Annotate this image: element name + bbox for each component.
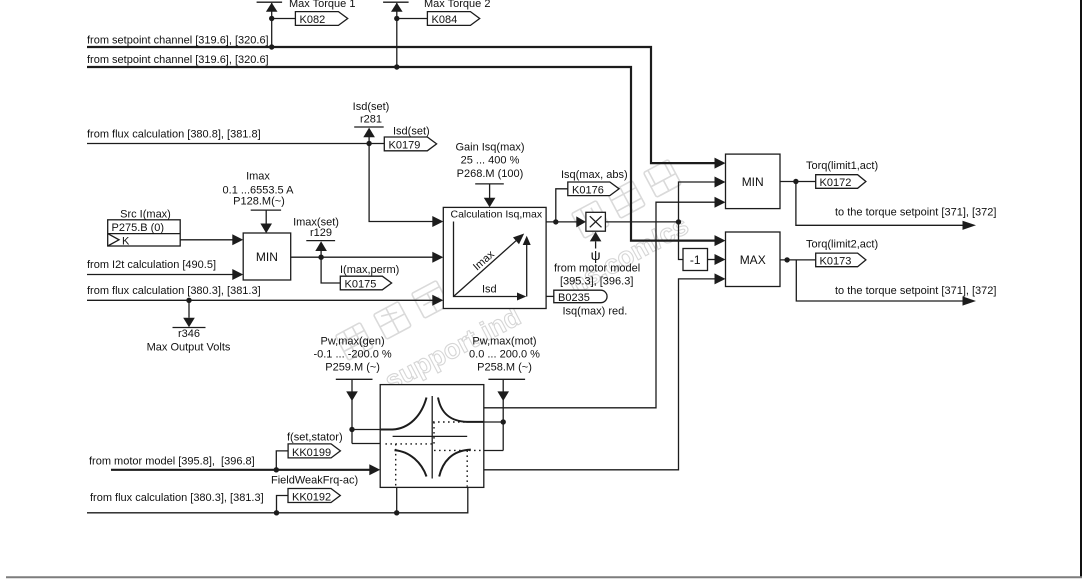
svg-text:Isd(set): Isd(set): [353, 101, 390, 113]
svg-text:P268.M (100): P268.M (100): [457, 168, 524, 180]
svg-text:Isd(set): Isd(set): [393, 126, 430, 138]
svg-text:P128.M(~): P128.M(~): [233, 196, 285, 208]
svg-text:r281: r281: [360, 114, 382, 126]
svg-text:P258.M (~): P258.M (~): [477, 362, 532, 374]
svg-text:[395.3], [396.3]: [395.3], [396.3]: [560, 276, 633, 288]
svg-text:r346: r346: [178, 328, 200, 340]
svg-text:KK0199: KK0199: [292, 447, 331, 459]
svg-text:ψ: ψ: [591, 247, 601, 263]
svg-text:Max Torque 2: Max Torque 2: [424, 0, 490, 10]
svg-text:Torq(limit2,act): Torq(limit2,act): [806, 239, 878, 251]
svg-text:from setpoint channel [319.6],: from setpoint channel [319.6], [320.6]: [87, 54, 269, 66]
svg-text:from flux calculation [380.3],: from flux calculation [380.3], [381.3]: [90, 492, 264, 504]
svg-text:25 ... 400 %: 25 ... 400 %: [461, 155, 520, 167]
svg-text:-0.1 ... -200.0 %: -0.1 ... -200.0 %: [313, 349, 391, 361]
svg-text:-1: -1: [690, 253, 701, 267]
svg-text:Max Torque 1: Max Torque 1: [289, 0, 355, 10]
svg-text:K0175: K0175: [345, 279, 377, 291]
svg-text:Calculation Isq,max: Calculation Isq,max: [451, 209, 543, 221]
svg-text:P275.B (0): P275.B (0): [112, 222, 165, 234]
svg-text:B0235: B0235: [558, 292, 590, 304]
svg-text:MIN: MIN: [742, 175, 764, 189]
svg-text:from motor model [395.8], [39: from motor model [395.8], [396.8]: [89, 456, 255, 468]
svg-text:from motor model: from motor model: [554, 263, 640, 275]
svg-text:KK0192: KK0192: [292, 492, 331, 504]
svg-text:Max Output Volts: Max Output Volts: [147, 342, 231, 354]
svg-text:f(set,stator): f(set,stator): [287, 432, 343, 444]
svg-text:K0173: K0173: [820, 256, 852, 268]
svg-text:K0179: K0179: [389, 140, 421, 152]
svg-text:from setpoint channel [319.6],: from setpoint channel [319.6], [320.6]: [87, 35, 269, 47]
svg-text:Pw,max(gen): Pw,max(gen): [320, 336, 384, 348]
svg-text:from flux calculation [380.3],: from flux calculation [380.3], [381.3]: [87, 285, 261, 297]
svg-text:Isq(max, abs): Isq(max, abs): [561, 169, 628, 181]
svg-text:from I2t calculation [490.5]: from I2t calculation [490.5]: [87, 259, 216, 271]
svg-text:Imax: Imax: [246, 171, 270, 183]
svg-text:K082: K082: [300, 14, 326, 26]
svg-text:to the torque setpoint [371],: to the torque setpoint [371], [372]: [835, 207, 996, 219]
svg-text:MIN: MIN: [256, 250, 278, 264]
svg-text:Gain Isq(max): Gain Isq(max): [455, 142, 524, 154]
svg-text:FieldWeakFrq-ac): FieldWeakFrq-ac): [271, 475, 358, 487]
svg-text:from flux calculation [380.8],: from flux calculation [380.8], [381.8]: [87, 129, 261, 141]
svg-text:r129: r129: [310, 227, 332, 239]
svg-text:Pw,max(mot): Pw,max(mot): [472, 336, 536, 348]
svg-text:Src I(max): Src I(max): [120, 209, 171, 221]
svg-text:K: K: [122, 235, 130, 247]
svg-text:P259.M (~): P259.M (~): [325, 362, 380, 374]
svg-text:K0176: K0176: [572, 185, 604, 197]
svg-text:Isq(max) red.: Isq(max) red.: [563, 306, 628, 318]
svg-text:K0172: K0172: [820, 177, 852, 189]
svg-text:Isd: Isd: [482, 284, 497, 296]
svg-text:K084: K084: [432, 14, 458, 26]
svg-text:MAX: MAX: [740, 253, 766, 267]
svg-text:I(max,perm): I(max,perm): [340, 264, 399, 276]
svg-text:to the torque setpoint [371],: to the torque setpoint [371], [372]: [835, 285, 996, 297]
svg-text:Torq(limit1,act): Torq(limit1,act): [806, 160, 878, 172]
svg-text:0.0 ... 200.0 %: 0.0 ... 200.0 %: [469, 349, 540, 361]
